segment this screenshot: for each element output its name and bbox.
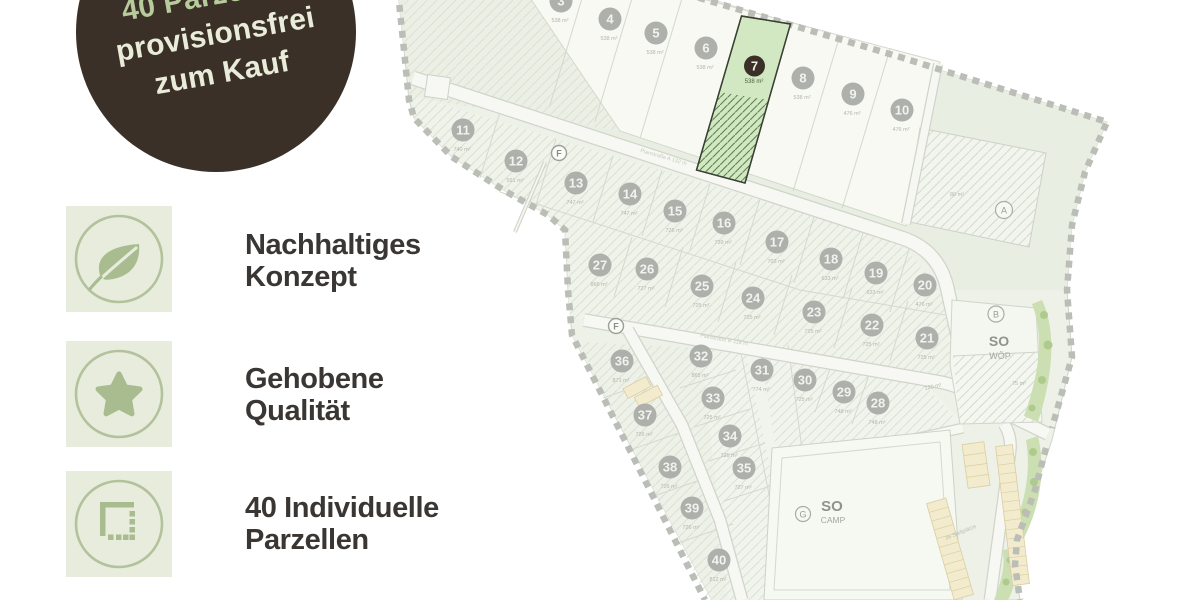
svg-text:17: 17 (770, 235, 784, 250)
svg-text:10: 10 (895, 103, 909, 118)
svg-text:14: 14 (623, 187, 638, 202)
svg-text:865 m²: 865 m² (691, 373, 708, 379)
svg-text:40: 40 (712, 553, 726, 568)
svg-text:9: 9 (849, 87, 856, 102)
svg-text:5: 5 (652, 26, 659, 41)
svg-text:33: 33 (706, 391, 720, 406)
svg-text:725 m²: 725 m² (743, 315, 760, 321)
svg-text:748 m²: 748 m² (868, 420, 885, 426)
svg-text:538 m²: 538 m² (551, 18, 568, 24)
svg-text:F: F (613, 322, 619, 332)
svg-text:748 m²: 748 m² (834, 409, 851, 415)
svg-text:747 m²: 747 m² (566, 200, 583, 206)
svg-text:16: 16 (717, 216, 731, 231)
svg-text:80 m²: 80 m² (950, 192, 964, 198)
svg-text:633 m²: 633 m² (866, 290, 883, 296)
svg-text:727 m²: 727 m² (637, 286, 654, 292)
svg-text:12: 12 (509, 154, 523, 169)
svg-text:7: 7 (751, 59, 758, 74)
svg-text:725 m²: 725 m² (917, 355, 934, 361)
svg-text:11: 11 (456, 123, 470, 138)
svg-text:38: 38 (663, 460, 677, 475)
svg-text:22: 22 (865, 318, 879, 333)
svg-text:747 m²: 747 m² (620, 211, 637, 217)
svg-text:28: 28 (871, 396, 885, 411)
svg-text:538 m²: 538 m² (745, 79, 764, 85)
svg-text:476 m²: 476 m² (892, 127, 909, 133)
svg-text:8: 8 (799, 71, 806, 86)
svg-text:SO: SO (821, 498, 843, 515)
svg-text:740 m²: 740 m² (453, 147, 470, 153)
svg-text:538 m²: 538 m² (646, 50, 663, 56)
svg-text:13: 13 (569, 176, 583, 191)
svg-text:774 m²: 774 m² (752, 387, 769, 393)
svg-text:725 m²: 725 m² (862, 342, 879, 348)
svg-text:75 m²: 75 m² (1012, 381, 1026, 387)
svg-text:15: 15 (668, 204, 682, 219)
svg-text:25: 25 (695, 279, 709, 294)
svg-text:23: 23 (807, 305, 821, 320)
svg-text:29: 29 (837, 385, 851, 400)
svg-text:538 m²: 538 m² (696, 65, 713, 71)
svg-text:538 m²: 538 m² (793, 95, 810, 101)
svg-text:CAMP: CAMP (821, 515, 846, 525)
svg-text:24: 24 (746, 291, 761, 306)
svg-text:726 m²: 726 m² (660, 484, 677, 490)
svg-text:812 m²: 812 m² (709, 577, 726, 583)
svg-text:633 m²: 633 m² (821, 276, 838, 282)
svg-text:725 m²: 725 m² (703, 415, 720, 421)
svg-text:727 m²: 727 m² (734, 485, 751, 491)
svg-text:26: 26 (640, 262, 654, 277)
svg-text:871 m²: 871 m² (612, 378, 629, 384)
svg-text:868 m²: 868 m² (590, 282, 607, 288)
svg-text:SO: SO (989, 333, 1009, 349)
svg-text:725 m²: 725 m² (692, 303, 709, 309)
svg-text:20: 20 (918, 278, 932, 293)
svg-text:19: 19 (869, 266, 883, 281)
svg-text:G: G (799, 510, 806, 520)
svg-text:18: 18 (824, 252, 838, 267)
svg-text:WÖP: WÖP (989, 351, 1011, 361)
svg-text:36: 36 (615, 354, 629, 369)
svg-text:726 m²: 726 m² (682, 525, 699, 531)
svg-text:32: 32 (694, 349, 708, 364)
svg-text:F: F (556, 149, 562, 159)
svg-text:726 m²: 726 m² (635, 432, 652, 438)
svg-text:30: 30 (798, 373, 812, 388)
svg-text:A: A (1001, 206, 1007, 216)
svg-text:703 m²: 703 m² (767, 259, 784, 265)
svg-text:725 m²: 725 m² (804, 329, 821, 335)
svg-text:21: 21 (920, 331, 934, 346)
svg-text:6: 6 (702, 41, 709, 56)
svg-text:37: 37 (638, 408, 652, 423)
svg-text:726 m²: 726 m² (665, 228, 682, 234)
svg-text:725 m²: 725 m² (795, 397, 812, 403)
svg-text:739 m²: 739 m² (714, 240, 731, 246)
svg-text:476 m²: 476 m² (915, 302, 932, 308)
svg-text:34: 34 (723, 429, 738, 444)
svg-text:476 m²: 476 m² (843, 111, 860, 117)
svg-text:31: 31 (755, 363, 769, 378)
svg-text:538 m²: 538 m² (600, 36, 617, 42)
svg-text:725 m²: 725 m² (720, 453, 737, 459)
svg-text:B: B (993, 310, 999, 320)
svg-text:35: 35 (737, 461, 751, 476)
svg-text:3: 3 (557, 0, 564, 9)
svg-text:39: 39 (685, 501, 699, 516)
svg-text:27: 27 (593, 258, 607, 273)
svg-text:4: 4 (606, 12, 614, 27)
svg-text:591 m²: 591 m² (506, 178, 523, 184)
